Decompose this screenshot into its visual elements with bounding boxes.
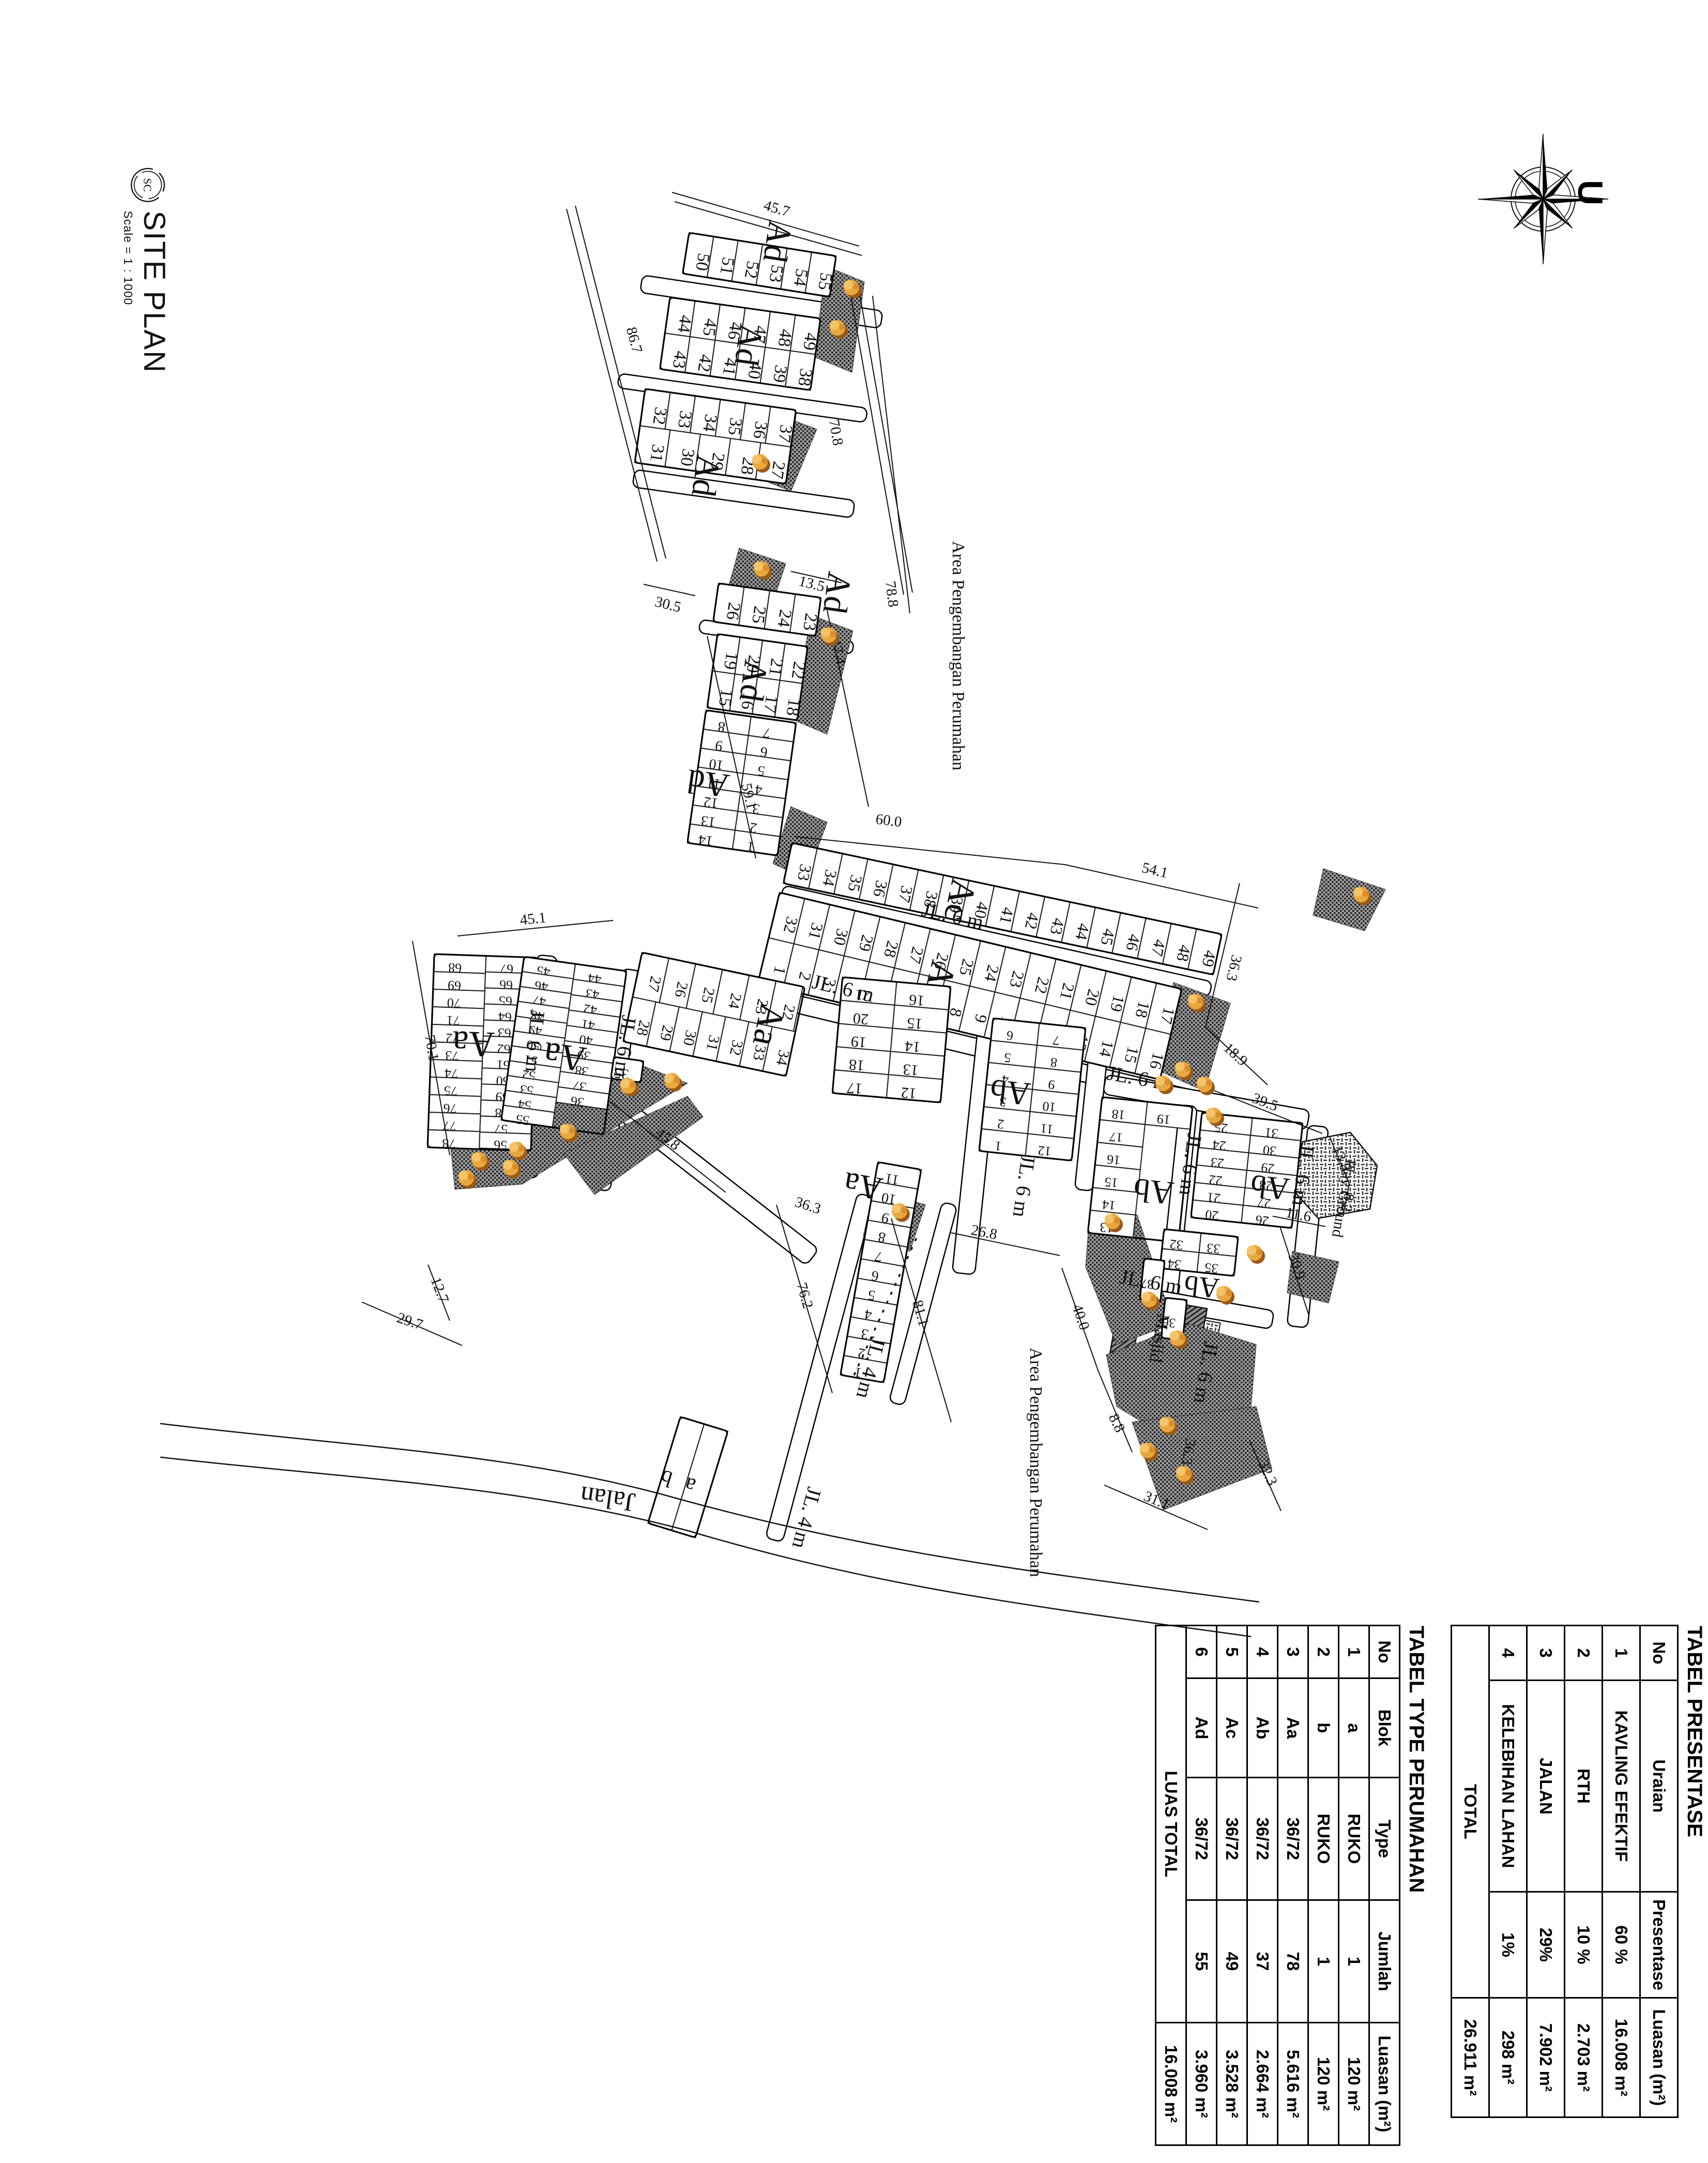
dimension-label: 70.8: [826, 418, 846, 447]
tabel-presentase: TABEL PRESENTASE No Uraian Presentase Lu…: [1451, 1625, 1706, 2118]
block-label: Aa: [841, 1165, 886, 1208]
dimension-label: 76.2: [793, 1281, 816, 1311]
cell: 4: [1247, 1626, 1278, 1678]
block-label: Ad: [684, 452, 728, 499]
block-label: Ab: [988, 1072, 1032, 1113]
cell: KELEBIHAN LAHAN: [1489, 1681, 1527, 1892]
cell: 36/72: [1247, 1778, 1278, 1900]
cell: 10 %: [1565, 1892, 1603, 1998]
lot-number: 16: [1106, 1152, 1121, 1168]
col-header: Presentase: [1640, 1892, 1678, 1998]
cell: 7.902 m²: [1527, 1998, 1565, 2117]
page-title: SITE PLAN: [137, 210, 172, 373]
cell: 2: [1565, 1626, 1603, 1681]
cell: 1%: [1489, 1892, 1527, 1998]
cell: Ab: [1247, 1678, 1278, 1778]
table-row: 2 b RUKO 1 120 m²: [1308, 1626, 1339, 2145]
lot-number: 31: [646, 443, 667, 463]
block-label: Aa: [541, 1034, 589, 1080]
compass-spike: [1543, 199, 1547, 264]
cell: 49: [1217, 1900, 1247, 2023]
cell: 1: [1339, 1900, 1369, 2023]
col-header: Uraian: [1640, 1681, 1678, 1892]
block-label: Ad: [685, 762, 731, 805]
map-label: Area Pengembangan Perumahan: [949, 541, 968, 770]
dimension-label: 40.0: [1069, 1302, 1093, 1332]
col-header: Type: [1369, 1778, 1400, 1900]
hatched-area: [1313, 869, 1385, 931]
cell: 6: [1186, 1626, 1217, 1678]
block-label: Ab: [1248, 1168, 1291, 1207]
col-header: Luasan (m²): [1640, 1998, 1678, 2117]
cell: 3: [1527, 1626, 1565, 1681]
dimension-label: 32.3: [1255, 1458, 1280, 1488]
col-header: Blok: [1369, 1678, 1400, 1778]
block-Ab: 789101112654321Ab: [979, 1018, 1086, 1161]
dimension-label: 8.8: [1105, 1411, 1128, 1435]
table-header-row: No Uraian Presentase Luasan (m²): [1640, 1626, 1678, 2117]
block-label: Ab: [1182, 1269, 1221, 1305]
lot-number: 17: [1108, 1129, 1123, 1146]
cell: Ac: [1217, 1678, 1247, 1778]
cell: 16.008 m²: [1603, 1998, 1640, 2117]
cell: 29%: [1527, 1892, 1565, 1998]
block-Ad: 505152535455Ad: [682, 207, 843, 297]
dimension-label: 86.7: [623, 325, 646, 355]
compass-spike: [1514, 170, 1543, 199]
cell: 3.960 m²: [1186, 2023, 1217, 2145]
scale-note: Scale = 1 : 1000: [121, 210, 135, 373]
table-row: 4 Ab 36/72 37 2.664 m²: [1247, 1626, 1278, 2145]
table-row: 5 Ac 36/72 49 3.528 m²: [1217, 1626, 1247, 2145]
block-label: Ad: [727, 322, 770, 368]
col-header: Luasan (m²): [1369, 2023, 1400, 2145]
cell: 5.616 m²: [1278, 2023, 1308, 2145]
tabel-type-title: TABEL TYPE PERUMAHAN: [1405, 1626, 1428, 2146]
cell: RUKO: [1308, 1778, 1339, 1900]
map-label: Area Pengembangan Perumahan: [1026, 1348, 1045, 1577]
cell: 37: [1247, 1900, 1278, 2023]
cell: b: [1308, 1678, 1339, 1778]
table-total-row: TOTAL 26.911 m²: [1452, 1626, 1489, 2117]
lot-number: 15: [1104, 1174, 1119, 1191]
cell: 36/72: [1278, 1778, 1308, 1900]
cell: 4: [1489, 1626, 1527, 1681]
cell: 55: [1186, 1900, 1217, 2023]
total-value: 16.008 m²: [1156, 2023, 1186, 2145]
cell: 120 m²: [1308, 2023, 1339, 2145]
cell: JALAN: [1527, 1681, 1565, 1892]
total-value: 26.911 m²: [1452, 1998, 1489, 2117]
cell: a: [1339, 1678, 1369, 1778]
cell: KAVLING EFEKTIF: [1603, 1681, 1640, 1892]
col-header: No: [1369, 1626, 1400, 1678]
table-row: 1 KAVLING EFEKTIF 60 % 16.008 m²: [1603, 1626, 1640, 2117]
table-row: 3 Aa 36/72 78 5.616 m²: [1278, 1626, 1308, 2145]
total-label: TOTAL: [1452, 1626, 1489, 1998]
sheet: 505152535455Ad444546474849434241403938Ad…: [0, 0, 1708, 2163]
block-label: Ab: [1132, 1171, 1176, 1212]
table-row: 1 a RUKO 1 120 m²: [1339, 1626, 1369, 2145]
dimension-label: 36.3: [1223, 954, 1245, 983]
tabel-type-perumahan: TABEL TYPE PERUMAHAN No Blok Type Jumlah…: [1155, 1625, 1428, 2146]
table-header-row: No Blok Type Jumlah Luasan (m²): [1369, 1626, 1400, 2145]
block-label: Ad: [756, 218, 800, 265]
cell: 2: [1308, 1626, 1339, 1678]
cell: 3.528 m²: [1217, 2023, 1247, 2145]
cell: RTH: [1565, 1681, 1603, 1892]
lot-number: 36: [570, 1094, 585, 1110]
logo-text: SC: [141, 178, 154, 192]
compass-spike: [1543, 199, 1573, 229]
table-row: 4 KELEBIHAN LAHAN 1% 298 m²: [1489, 1626, 1527, 2117]
dimension-label: 12.7: [427, 1275, 452, 1305]
table-row: 6 Ad 36/72 55 3.960 m²: [1186, 1626, 1217, 2145]
cell: 1: [1603, 1626, 1640, 1681]
total-label: LUAS TOTAL: [1156, 1626, 1186, 2023]
block-label: Aa: [452, 1023, 495, 1064]
compass-spike: [1543, 170, 1573, 199]
cell: 5: [1217, 1626, 1247, 1678]
col-header: Jumlah: [1369, 1900, 1400, 2023]
table-row: 3 JALAN 29% 7.902 m²: [1527, 1626, 1565, 2117]
dimension-label: 45.7: [762, 197, 792, 220]
cell: 3: [1278, 1626, 1308, 1678]
block-Ad: 7654321891011121314Ad: [679, 709, 796, 858]
cell: 78: [1278, 1900, 1308, 2023]
table-row: 2 RTH 10 % 2.703 m²: [1565, 1626, 1603, 2117]
dimension-label: 45.1: [519, 909, 547, 928]
cell: RUKO: [1339, 1778, 1369, 1900]
block-label: Ad: [732, 658, 775, 704]
compass-spike: [1478, 199, 1543, 203]
sc-logo-icon: SC: [124, 167, 172, 203]
cell: 120 m²: [1339, 2023, 1369, 2145]
cell: 2.664 m²: [1247, 2023, 1278, 2145]
dimension-label: 78.8: [882, 580, 902, 608]
north-label: U: [1570, 180, 1610, 205]
block-lots: ab: [647, 1416, 728, 1537]
compass-spike: [1543, 134, 1547, 199]
lot-number: 19: [1156, 1111, 1171, 1128]
type-perumahan-table: No Blok Type Jumlah Luasan (m²) 1 a RUKO…: [1155, 1625, 1400, 2146]
compass-spike: [1514, 199, 1543, 229]
presentase-table: No Uraian Presentase Luasan (m²) 1 KAVLI…: [1451, 1625, 1679, 2118]
dimension-label: 29.7: [395, 1309, 425, 1333]
tabel-presentase-title: TABEL PRESENTASE: [1683, 1626, 1706, 2118]
table-total-row: LUAS TOTAL 16.008 m²: [1156, 1626, 1186, 2145]
cell: Aa: [1278, 1678, 1308, 1778]
compass-spike: [1478, 195, 1543, 199]
cell: 1: [1308, 1900, 1339, 2023]
cell: 36/72: [1217, 1778, 1247, 1900]
cell: 2.703 m²: [1565, 1998, 1603, 2117]
boundary-line: [849, 285, 912, 613]
lot-number: 11: [1040, 1121, 1054, 1137]
road-label: JL. 6 m: [1009, 1154, 1040, 1219]
cell: 298 m²: [1489, 1998, 1527, 2117]
lot-number: 14: [1102, 1197, 1117, 1214]
compass-spike: [1539, 199, 1543, 264]
dimension-label: 60.0: [875, 811, 903, 830]
col-header: No: [1640, 1626, 1678, 1681]
tree-icon: [1247, 1245, 1265, 1264]
dimension-label: 54.1: [1140, 859, 1170, 882]
cell: 36/72: [1186, 1778, 1217, 1900]
lot-number: 27: [767, 460, 788, 480]
lot-number: 55: [515, 1112, 530, 1128]
cell: Ad: [1186, 1678, 1217, 1778]
boundary-line: [362, 1265, 462, 1345]
cell: 60 %: [1603, 1892, 1640, 1998]
lot-number: 18: [1111, 1107, 1126, 1123]
dimension-label: 36.3: [793, 1193, 823, 1217]
cell: 1: [1339, 1626, 1369, 1678]
compass-spike: [1539, 134, 1543, 199]
dimension-label: 30.5: [653, 594, 683, 616]
title-block: SC SITE PLAN Scale = 1 : 1000: [80, 167, 172, 373]
